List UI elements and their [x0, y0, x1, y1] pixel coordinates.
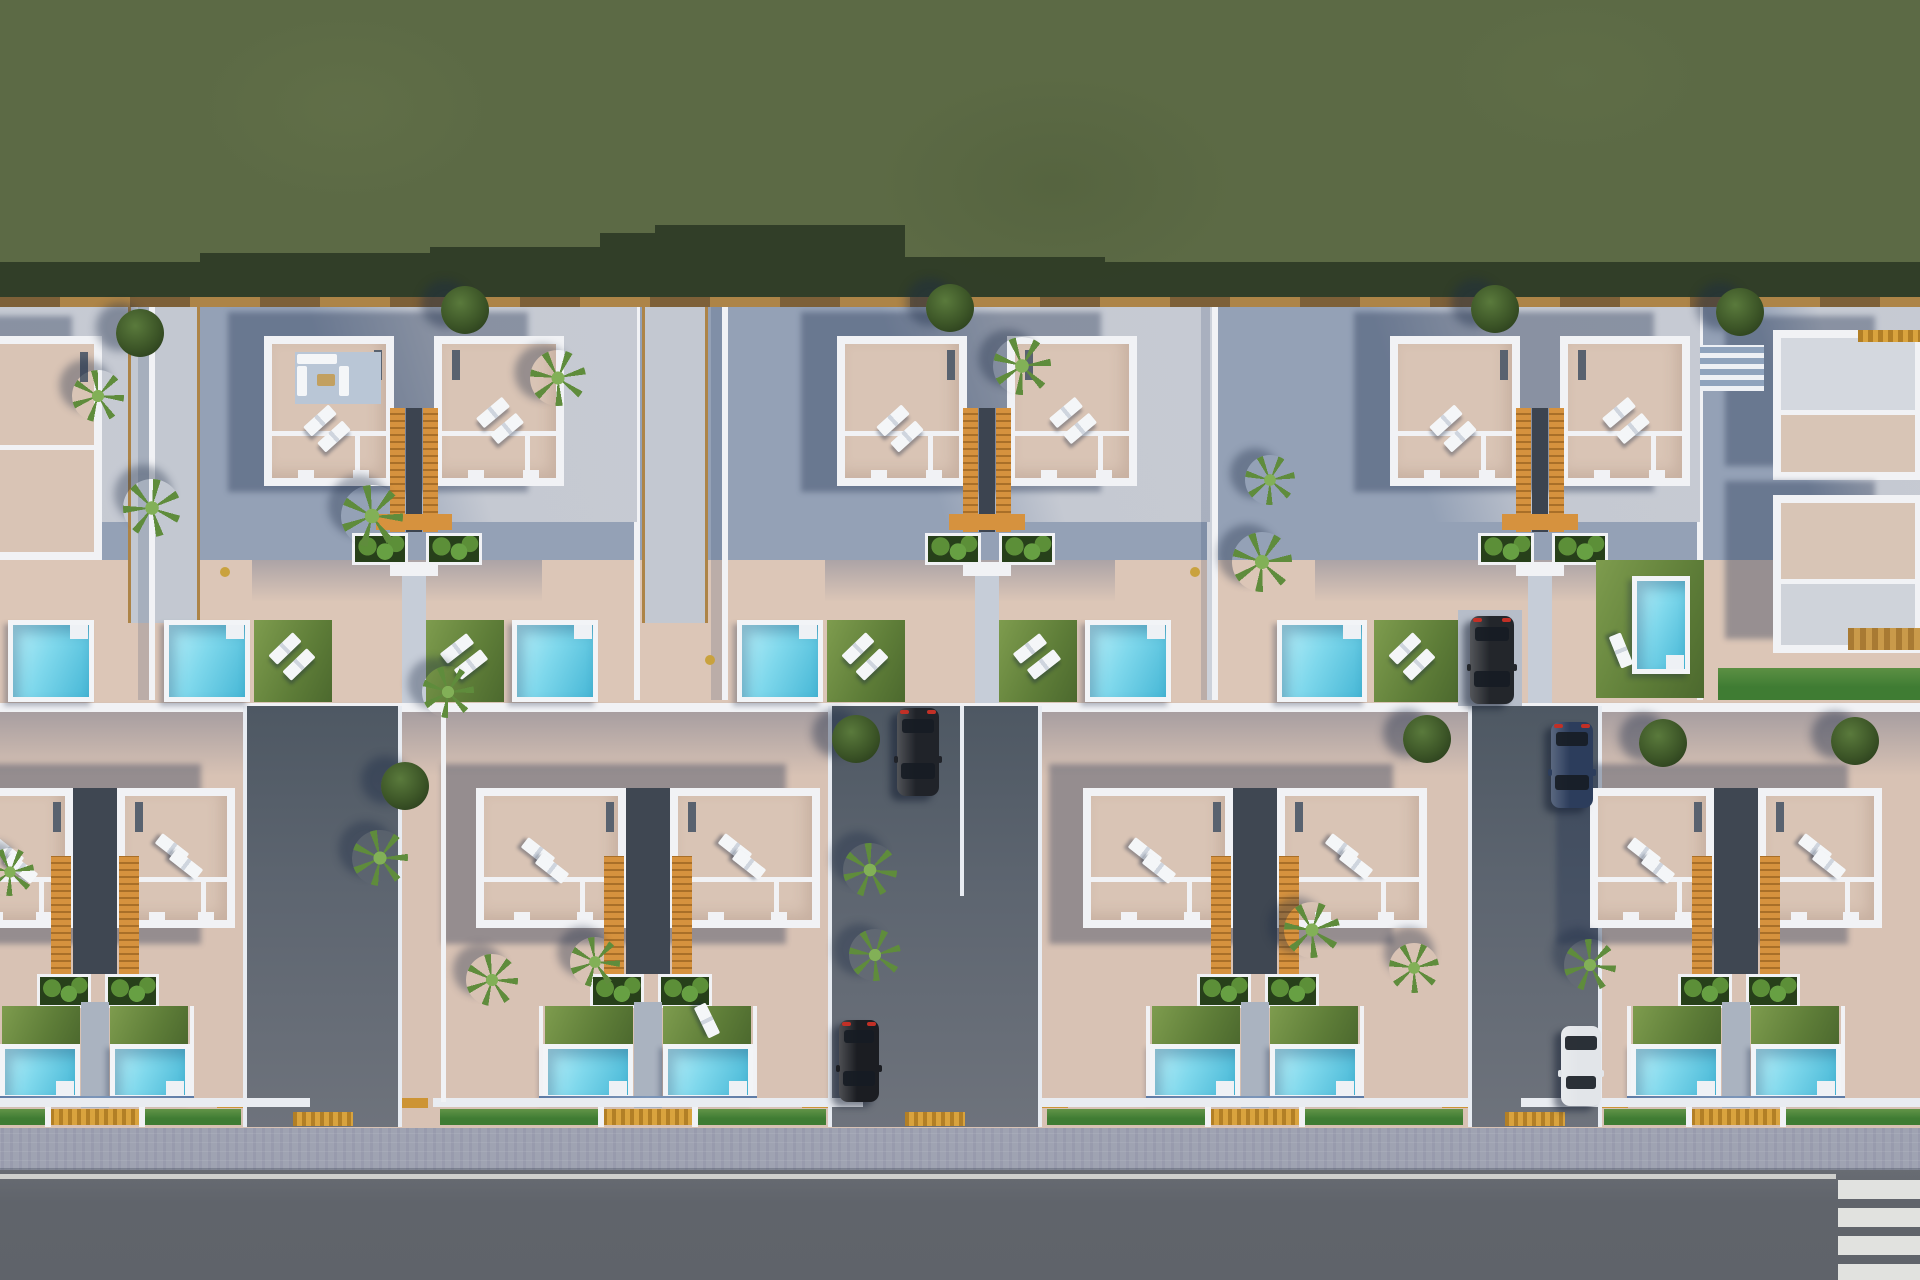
stairs-orange: [51, 856, 71, 974]
patio-table: [705, 655, 715, 665]
bottom-pair-3-pool-left: [1150, 1044, 1240, 1100]
outdoor-sofa: [339, 366, 349, 396]
pool-steps: [1817, 1081, 1835, 1095]
roof-divider-line: [1781, 410, 1915, 415]
wood-walkway: [1858, 330, 1920, 342]
front-wall: [433, 1098, 863, 1107]
stairs-orange: [1760, 856, 1780, 974]
entry-path: [1528, 576, 1552, 703]
car-mirror: [894, 756, 898, 763]
pool-steps: [609, 1081, 627, 1095]
patio-table: [220, 567, 230, 577]
rooftop-vent: [452, 350, 460, 380]
pool-steps: [574, 625, 592, 639]
parapet-notch: [871, 470, 887, 479]
front-hedge: [1303, 1109, 1463, 1125]
car-mirror: [1558, 1070, 1562, 1077]
parapet-notch: [353, 470, 369, 479]
gate-post: [1205, 1107, 1211, 1127]
parapet-notch: [1121, 912, 1137, 921]
parapet-notch: [926, 470, 942, 479]
gate-post: [692, 1107, 698, 1127]
top-pair-b-pool-left: [164, 620, 250, 702]
round-tree: [116, 309, 164, 357]
bottom-pair-1-pool-right: [110, 1044, 190, 1100]
round-tree: [441, 286, 489, 334]
round-tree: [1831, 717, 1879, 765]
bottom-pair-2-pool-right: [663, 1044, 753, 1100]
garden-wall: [1841, 1006, 1845, 1102]
bottom-pair-2-lawn-left: [545, 1006, 633, 1044]
roof-divider-line: [484, 877, 618, 882]
alley-gold-threshold: [293, 1112, 353, 1126]
planter-box: [426, 533, 482, 565]
gate-gold: [50, 1109, 140, 1125]
garden-wall: [539, 1006, 543, 1102]
parapet-notch: [1479, 470, 1495, 479]
gate-post: [1780, 1107, 1786, 1127]
garden-path: [642, 307, 708, 623]
entry-porch: [963, 562, 1011, 576]
rooftop-vent: [1213, 802, 1221, 832]
round-tree: [832, 715, 880, 763]
stairs-landing-orange: [1502, 514, 1578, 530]
gate-gold: [1691, 1109, 1781, 1125]
pool-steps: [166, 1081, 184, 1095]
car-taillight: [1473, 618, 1482, 622]
garden-wall: [1146, 1006, 1150, 1102]
parapet-notch: [1594, 470, 1610, 479]
road-edge-line: [0, 1174, 1836, 1179]
parapet-notch: [149, 912, 165, 921]
round-tree: [1639, 719, 1687, 767]
side-garden-pool: [1632, 576, 1690, 674]
gate-post: [139, 1107, 145, 1127]
bottom-pair-4-lawn-left: [1633, 1006, 1721, 1044]
rooftop-vent: [947, 350, 955, 380]
car-rear-window: [902, 719, 934, 733]
rooftop-vent: [606, 802, 614, 832]
pool-steps: [799, 625, 817, 639]
top-pair-a-villa: [0, 336, 102, 560]
top-pair-c-pool-right: [1085, 620, 1171, 702]
garden-wall: [1360, 1006, 1364, 1102]
roof-divider-line: [1598, 877, 1706, 882]
car-black-sedan-1: [897, 708, 939, 796]
round-tree: [926, 284, 974, 332]
front-hedge: [1047, 1109, 1207, 1125]
car-taillight: [1502, 618, 1511, 622]
planter-box: [925, 533, 981, 565]
corridor-path: [626, 788, 670, 974]
rooftop-vent: [135, 802, 143, 832]
corridor-path: [1714, 788, 1758, 974]
pool-steps: [1336, 1081, 1354, 1095]
car-rear-window: [1475, 627, 1509, 641]
compound-upper-building: [1773, 330, 1920, 480]
front-hedge: [143, 1109, 241, 1125]
car-mirror: [1600, 1070, 1604, 1077]
gate-gold: [603, 1109, 693, 1125]
pergola-slats: [1700, 345, 1764, 391]
gate-gold-block: [402, 1098, 428, 1108]
parapet-notch: [1096, 470, 1112, 479]
parapet-notch: [36, 912, 52, 921]
stairs-orange: [1211, 856, 1231, 974]
stairs-orange: [1692, 856, 1712, 974]
car-suv-black: [1470, 616, 1514, 704]
pool-steps: [70, 625, 88, 639]
bottom-pair-1-lawn-right: [110, 1006, 188, 1044]
pool-steps: [1147, 625, 1165, 639]
round-tree: [381, 762, 429, 810]
corridor-path: [73, 788, 117, 974]
car-windshield: [843, 1071, 875, 1086]
car-mirror: [1467, 664, 1471, 671]
pool-steps: [1697, 1081, 1715, 1095]
gate-post: [1686, 1107, 1692, 1127]
alley-1: [245, 706, 400, 1127]
bottom-pair-2-pool-left: [543, 1044, 633, 1100]
stairs-orange: [672, 856, 692, 974]
pool-steps: [1216, 1081, 1234, 1095]
front-hedge: [696, 1109, 826, 1125]
car-mirror: [1592, 769, 1596, 776]
entry-path: [975, 576, 999, 703]
car-mirror: [1548, 769, 1552, 776]
alley-edge-wall: [243, 706, 247, 1127]
parapet-notch: [514, 912, 530, 921]
crosswalk-stripe: [1838, 1208, 1920, 1227]
alley-divider-wall: [960, 706, 964, 896]
roof-divider-line: [1285, 877, 1419, 882]
top-pair-b-pool-right: [512, 620, 598, 702]
bottom-pair-3-lawn-left: [1152, 1006, 1240, 1044]
stairs-orange: [119, 856, 139, 974]
crosswalk-stripe: [1838, 1236, 1920, 1255]
bottom-pair-3-lawn-right: [1270, 1006, 1358, 1044]
car-taillight: [927, 710, 936, 714]
parapet-notch: [771, 912, 787, 921]
alley-edge-wall: [1038, 706, 1042, 1127]
patio-table: [1190, 567, 1200, 577]
rooftop-lounge-floor: [295, 352, 381, 404]
parapet-notch: [577, 912, 593, 921]
car-taillight: [900, 710, 909, 714]
top-pair-d-pool-left: [1277, 620, 1367, 702]
top-pair-c-pool-left: [737, 620, 823, 702]
stairs-landing-orange: [949, 514, 1025, 530]
crosswalk-stripe: [1838, 1180, 1920, 1199]
pool-steps: [226, 625, 244, 639]
planter-box: [1746, 974, 1800, 1008]
alley-edge-wall: [828, 706, 832, 1127]
parapet-notch: [298, 470, 314, 479]
planter-box: [1265, 974, 1319, 1008]
crosswalk-stripe: [1838, 1264, 1920, 1280]
bottom-pair-1-lawn-left: [2, 1006, 80, 1044]
rooftop-vent: [1500, 350, 1508, 380]
parapet-notch: [0, 912, 3, 921]
rooftop-vent: [53, 802, 61, 832]
car-mirror: [1513, 664, 1517, 671]
roof-divider-line: [1781, 579, 1915, 584]
pool-steps: [56, 1081, 74, 1095]
parapet-notch: [468, 470, 484, 479]
parapet-notch: [708, 912, 724, 921]
car-taillight: [1554, 724, 1563, 728]
sidewalk: [0, 1128, 1920, 1170]
rooftop-vent: [1776, 802, 1784, 832]
bottom-pair-4-lawn-right: [1751, 1006, 1839, 1044]
bottom-pair-4-pool-right: [1751, 1044, 1841, 1100]
planter-box: [999, 533, 1055, 565]
corridor-path: [1233, 788, 1277, 974]
car-taillight: [842, 1022, 851, 1026]
front-wall: [0, 1098, 310, 1107]
parapet-notch: [1041, 470, 1057, 479]
planter-box: [1478, 533, 1534, 565]
parapet-notch: [523, 470, 539, 479]
front-hedge: [1784, 1109, 1920, 1125]
entry-path: [1722, 1002, 1750, 1108]
gate-post: [45, 1107, 51, 1127]
roof-divider-line: [1091, 877, 1225, 882]
car-mirror: [878, 1065, 882, 1072]
aerial-render-scene: Top-down 3D render of a residential vill…: [0, 0, 1920, 1280]
parapet-notch: [1791, 912, 1807, 921]
car-rear-window: [1566, 1076, 1596, 1089]
front-hedge: [440, 1109, 600, 1125]
bottom-pair-3-pool-right: [1270, 1044, 1360, 1100]
alley-gold-threshold: [1505, 1112, 1565, 1126]
car-mirror: [836, 1065, 840, 1072]
parapet-notch: [1378, 912, 1394, 921]
road: [0, 1170, 1920, 1280]
entry-porch: [390, 562, 438, 576]
car-windshield: [1555, 775, 1589, 790]
roof-divider-line: [678, 877, 812, 882]
gate-post: [598, 1107, 604, 1127]
pool-steps: [1666, 655, 1684, 669]
alley-gold-threshold: [905, 1112, 965, 1126]
rooftop-vent: [1295, 802, 1303, 832]
front-hedge: [1604, 1109, 1688, 1125]
entry-porch: [1516, 562, 1564, 576]
entry-path: [1241, 1002, 1269, 1108]
gate-post: [1299, 1107, 1305, 1127]
entry-path: [634, 1002, 662, 1108]
rooftop-vent: [1694, 802, 1702, 832]
outdoor-sofa: [297, 354, 337, 364]
garden-wall: [190, 1006, 194, 1102]
roof-divider-line: [0, 445, 94, 450]
car-taillight: [1581, 724, 1590, 728]
round-tree: [1716, 288, 1764, 336]
front-wall: [1040, 1098, 1470, 1107]
parapet-notch: [1184, 912, 1200, 921]
car-white-sedan: [1561, 1026, 1601, 1106]
car-rear-window: [1556, 732, 1588, 746]
alley-edge-wall: [1468, 706, 1472, 1127]
car-navy-sedan: [1551, 722, 1593, 808]
car-black-sedan-2: [839, 1020, 879, 1102]
roof-divider-line: [125, 877, 227, 882]
front-hedge: [0, 1109, 47, 1125]
rooftop-vent: [1578, 350, 1586, 380]
car-windshield: [1565, 1036, 1597, 1050]
bottom-pair-4-pool-left: [1631, 1044, 1721, 1100]
car-windshield: [901, 763, 935, 779]
wood-deck: [1848, 628, 1920, 650]
garden-wall: [441, 712, 446, 1102]
parapet-notch: [1424, 470, 1440, 479]
parapet-notch: [1675, 912, 1691, 921]
roof-divider-line: [1766, 877, 1874, 882]
parapet-notch: [1843, 912, 1859, 921]
roof-section: [1781, 413, 1915, 472]
pool-steps: [729, 1081, 747, 1095]
parapet-notch: [198, 912, 214, 921]
gate-gold: [1210, 1109, 1300, 1125]
pool-steps: [1343, 625, 1361, 639]
garden-hedge: [1718, 668, 1920, 700]
car-windshield: [1474, 671, 1510, 687]
round-tree: [1403, 715, 1451, 763]
planter-box: [105, 974, 159, 1008]
outdoor-sofa: [297, 366, 307, 396]
rooftop-vent: [688, 802, 696, 832]
car-taillight: [867, 1022, 876, 1026]
entry-path: [81, 1002, 109, 1108]
round-tree: [1471, 285, 1519, 333]
parapet-notch: [1623, 912, 1639, 921]
coffee-table: [317, 374, 335, 386]
parapet-notch: [1649, 470, 1665, 479]
bottom-pair-1-pool-left: [0, 1044, 80, 1100]
car-mirror: [938, 756, 942, 763]
car-rear-window: [844, 1030, 874, 1043]
garden-wall: [1627, 1006, 1631, 1102]
garden-wall: [753, 1006, 757, 1102]
top-pair-a-pool: [8, 620, 94, 702]
